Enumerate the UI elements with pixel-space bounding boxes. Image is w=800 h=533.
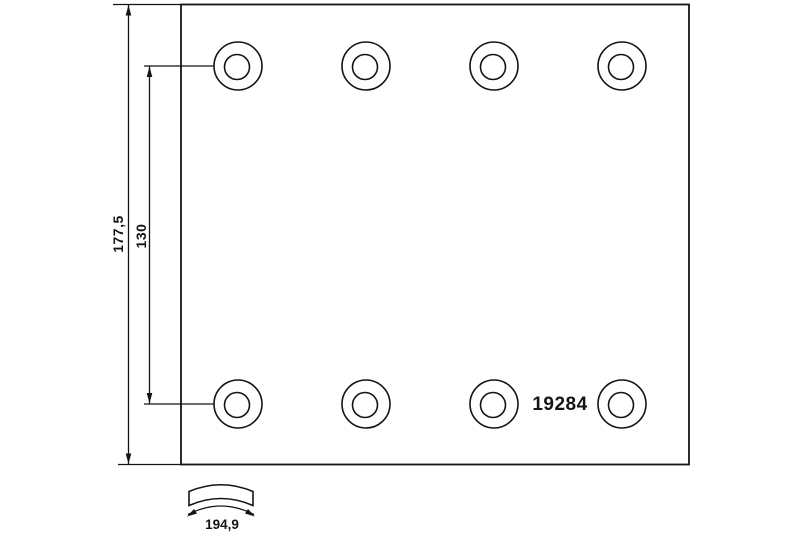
- part-number-label: 19284: [532, 394, 587, 415]
- dim-arrow-up: [147, 67, 153, 78]
- lining-cross-section: [189, 485, 253, 506]
- dim-hole-spacing-label: 130: [133, 224, 149, 249]
- dim-arrow-down: [126, 454, 132, 465]
- dim-arrow-left: [187, 509, 197, 517]
- dim-arc-line: [188, 506, 254, 515]
- brake-lining-drawing-canvas: 19284 177,5 130 194,9: [0, 0, 800, 533]
- dim-height-label: 177,5: [110, 215, 126, 253]
- dim-arrow-right: [245, 509, 255, 517]
- dim-arrow-down: [147, 393, 153, 404]
- dim-arc-length-label: 194,9: [205, 517, 239, 532]
- dim-arrow-up: [126, 5, 132, 16]
- technical-drawing: 19284 177,5 130 194,9: [0, 0, 800, 533]
